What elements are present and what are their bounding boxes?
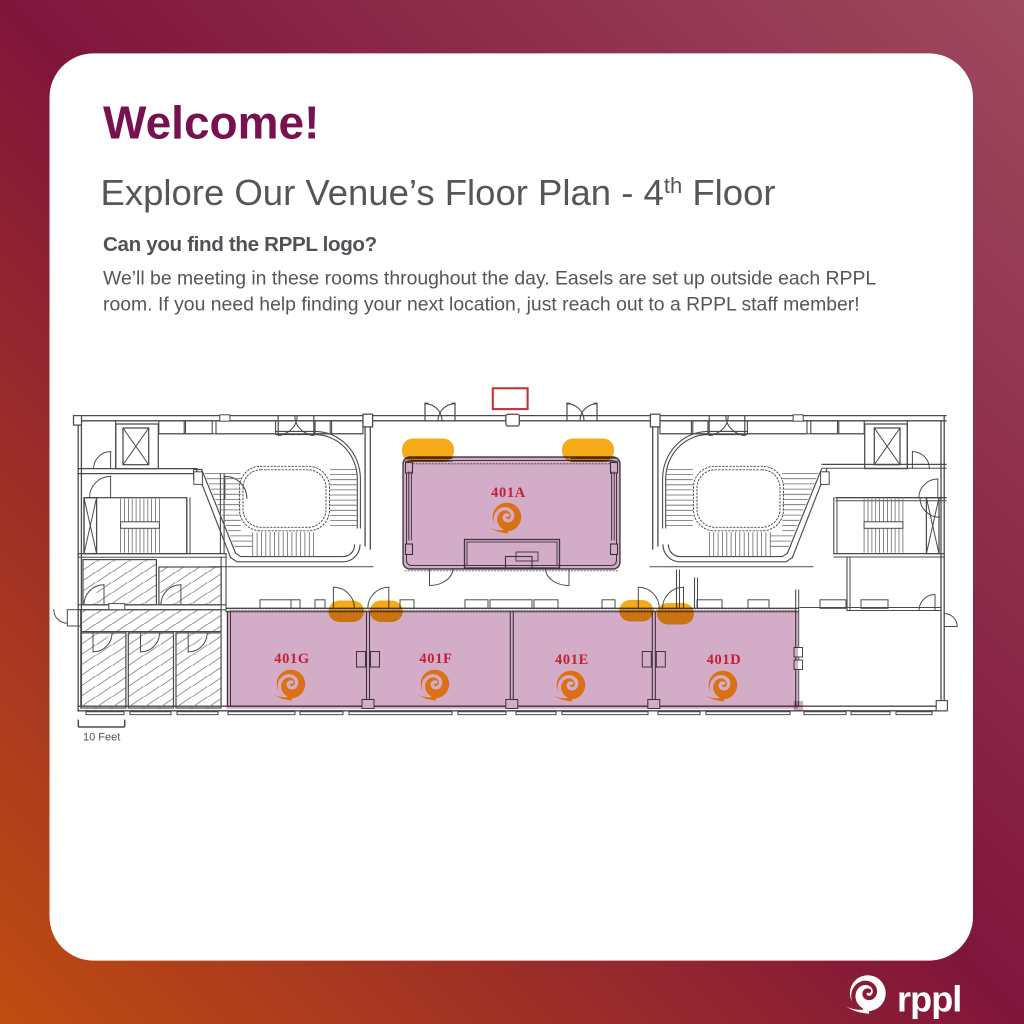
svg-text:401E: 401E	[555, 652, 589, 668]
svg-text:401A: 401A	[491, 485, 526, 501]
svg-text:Can you find the RPPL logo?: Can you find the RPPL logo?	[103, 233, 377, 256]
svg-text:We’ll be meeting in these room: We’ll be meeting in these rooms througho…	[103, 268, 876, 290]
svg-text:rppl: rppl	[897, 979, 961, 1020]
svg-text:room. If you need help finding: room. If you need help finding your next…	[103, 294, 860, 316]
svg-text:10 Feet: 10 Feet	[83, 731, 120, 743]
svg-text:401D: 401D	[707, 652, 742, 668]
svg-text:Welcome!: Welcome!	[103, 96, 319, 148]
svg-text:401G: 401G	[274, 651, 310, 667]
svg-text:401F: 401F	[419, 651, 452, 667]
